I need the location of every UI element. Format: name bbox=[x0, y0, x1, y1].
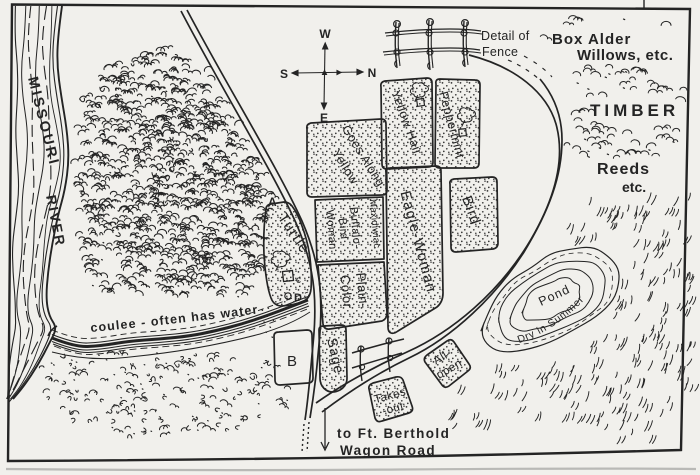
svg-text:to Ft. Berthold: to Ft. Berthold bbox=[337, 426, 450, 441]
svg-text:W: W bbox=[319, 27, 331, 41]
svg-text:Box Alder: Box Alder bbox=[552, 31, 631, 48]
svg-text:Wagon Road: Wagon Road bbox=[340, 443, 436, 458]
svg-text:TIMBER: TIMBER bbox=[590, 101, 679, 120]
svg-text:N: N bbox=[368, 66, 377, 80]
svg-text:etc.: etc. bbox=[622, 179, 646, 195]
svg-text:E: E bbox=[320, 111, 328, 125]
svg-text:Fence: Fence bbox=[482, 45, 518, 59]
svg-text:Reeds: Reeds bbox=[597, 161, 650, 178]
svg-text:D: D bbox=[294, 292, 302, 304]
svg-text:B: B bbox=[287, 353, 297, 370]
svg-text:Color: Color bbox=[338, 274, 356, 309]
svg-text:Willows, etc.: Willows, etc. bbox=[577, 47, 673, 64]
svg-text:Plain-: Plain- bbox=[353, 272, 371, 309]
svg-text:A: A bbox=[268, 195, 277, 209]
svg-text:S: S bbox=[280, 67, 288, 81]
svg-text:c: c bbox=[296, 275, 301, 286]
svg-text:Detail of: Detail of bbox=[481, 29, 530, 43]
